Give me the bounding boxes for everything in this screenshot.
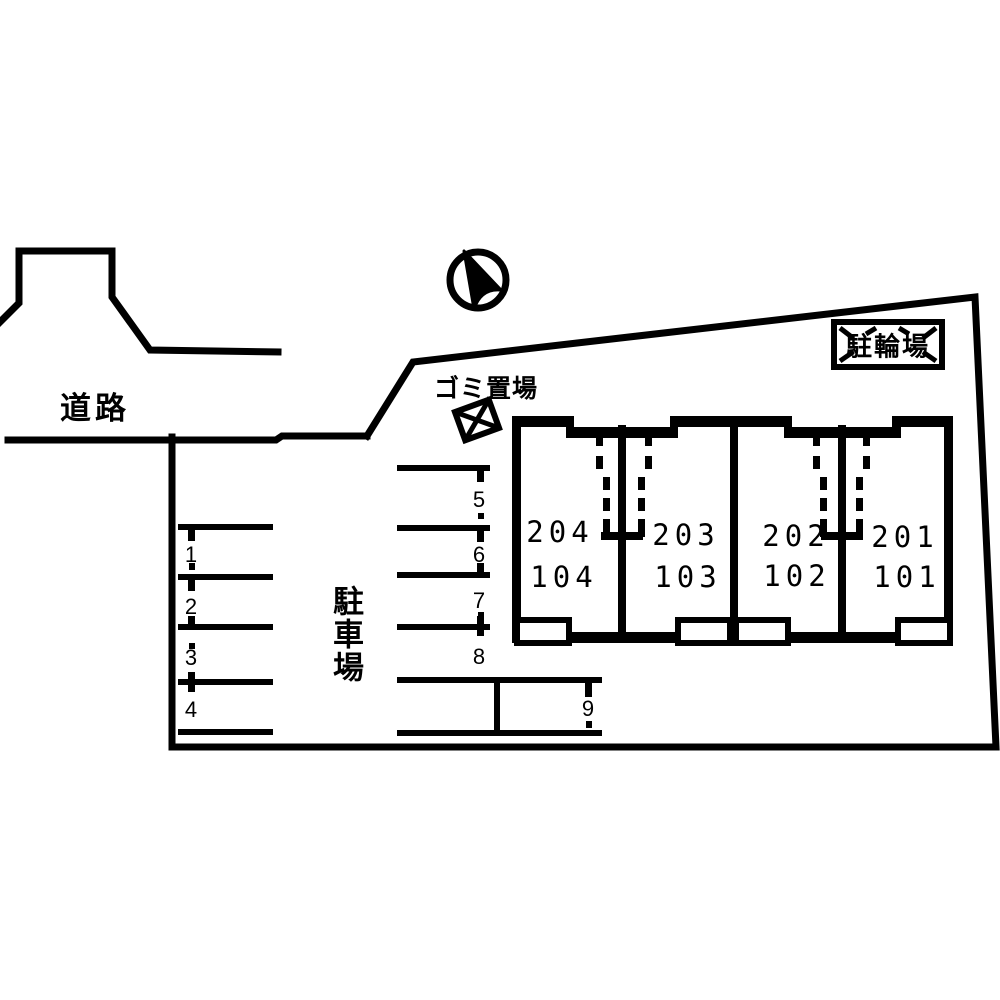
parking-space-2: 2 [185,594,197,620]
road-edge-line [8,436,367,440]
parking-space-6: 6 [473,542,485,568]
unit-label-101: 101 [873,560,940,594]
parking-space-3: 3 [185,645,197,671]
unit-label-104: 104 [530,560,597,594]
unit-label-203: 203 [652,518,719,552]
parking-space9-lines [397,677,602,736]
unit-label-204: 204 [526,515,593,549]
north-arrow-icon [450,251,506,309]
site-plan: 道路 駐車場 ゴミ置場 駐輪場 204 104 203 103 202 102 … [0,0,1000,1000]
neighbor-lot-outline [0,251,278,352]
parking-space-4: 4 [185,697,197,723]
parking-space-7: 7 [473,588,485,614]
unit-label-103: 103 [654,560,721,594]
parking-space-8: 8 [473,644,485,670]
bicycle-parking-label: 駐輪場 [846,327,930,364]
unit-label-201: 201 [871,520,938,554]
unit-label-102: 102 [763,559,830,593]
unit-label-202: 202 [762,519,829,553]
parking-space-5: 5 [473,487,485,513]
parking-space-1: 1 [185,542,197,568]
garbage-area-label: ゴミ置場 [434,369,538,405]
parking-lot-label: 駐車場 [323,585,368,684]
site-plan-linework [0,0,1000,1000]
parking-space-9: 9 [582,696,594,722]
garbage-marker-icon [455,400,499,441]
road-label: 道路 [60,383,130,428]
